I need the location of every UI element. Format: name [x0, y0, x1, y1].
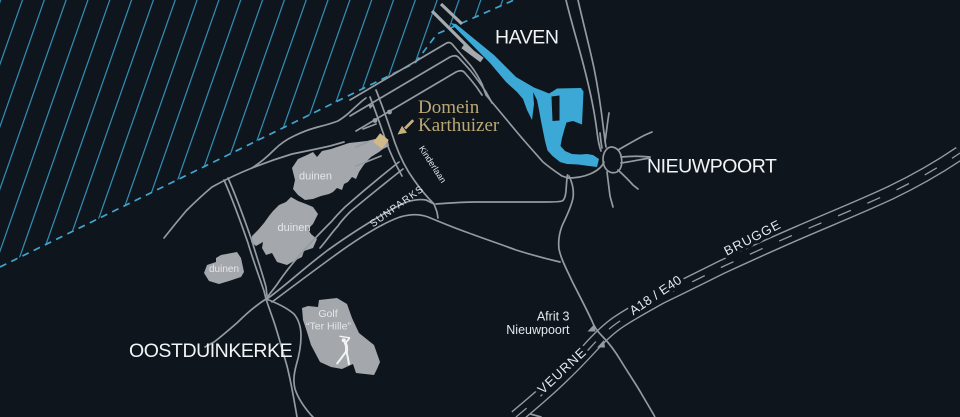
- svg-text:duinen: duinen: [209, 264, 239, 275]
- svg-text:NIEUWPOORT: NIEUWPOORT: [647, 156, 777, 178]
- svg-text:HAVEN: HAVEN: [495, 27, 559, 49]
- svg-text:OOSTDUINKERKE: OOSTDUINKERKE: [129, 340, 293, 362]
- svg-text:Karthuizer: Karthuizer: [418, 115, 500, 136]
- svg-text:Nieuwpoort: Nieuwpoort: [506, 323, 570, 337]
- svg-text:Afrit 3: Afrit 3: [537, 310, 570, 324]
- svg-text:duinen: duinen: [277, 222, 310, 234]
- svg-text:duinen: duinen: [299, 171, 332, 183]
- svg-text:“Ter Hille”: “Ter Hille”: [306, 321, 351, 333]
- svg-text:Golf: Golf: [318, 308, 337, 320]
